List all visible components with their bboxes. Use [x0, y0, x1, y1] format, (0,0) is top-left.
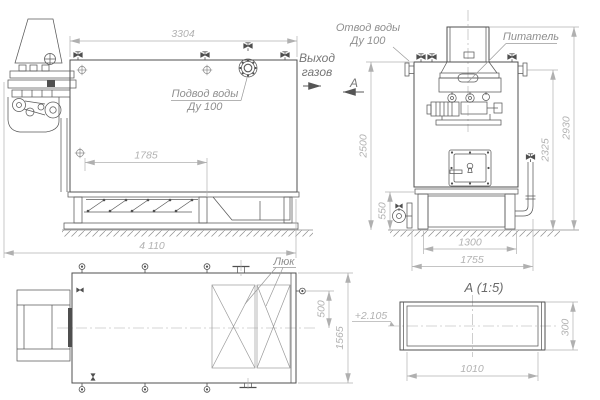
dim-text: 2930	[561, 116, 573, 141]
dim-text: 1755	[460, 254, 484, 266]
dim-text: 500	[316, 300, 328, 318]
label-text: Люк	[272, 256, 295, 268]
elevation-text: +2.105	[355, 310, 388, 322]
drawing-sheet: 3304 1785 4 110 Подвод воды Ду 100 2500 …	[0, 0, 600, 400]
label-text: Выход	[299, 51, 335, 65]
dim-text: 1300	[458, 237, 482, 249]
label-text: Подвод воды	[172, 88, 239, 100]
dim-text: 3304	[171, 28, 195, 40]
dim-text: 2325	[540, 138, 552, 163]
section-title: А (1:5)	[463, 280, 503, 295]
dim-text: 1565	[334, 326, 346, 350]
technical-drawing: 3304 1785 4 110 Подвод воды Ду 100 2500 …	[0, 0, 600, 400]
label-text: Питатель	[503, 31, 559, 43]
dim-text: 4 110	[139, 240, 165, 252]
dim-text: 1010	[460, 363, 484, 375]
front-ground	[62, 230, 313, 237]
section-title-text: А (1:5)	[463, 280, 503, 295]
label-text: Ду 100	[186, 101, 224, 113]
dim-text: 550	[377, 202, 389, 220]
dim-text: 1785	[134, 150, 158, 162]
section-letter: А	[349, 76, 358, 90]
side-ground	[388, 230, 579, 237]
label-text: Ду 100	[349, 35, 387, 47]
dim-text: 300	[560, 319, 572, 337]
label-text: Отвод воды	[336, 22, 400, 34]
dim-text: 2500	[358, 134, 370, 159]
label-text: газов	[302, 65, 333, 79]
